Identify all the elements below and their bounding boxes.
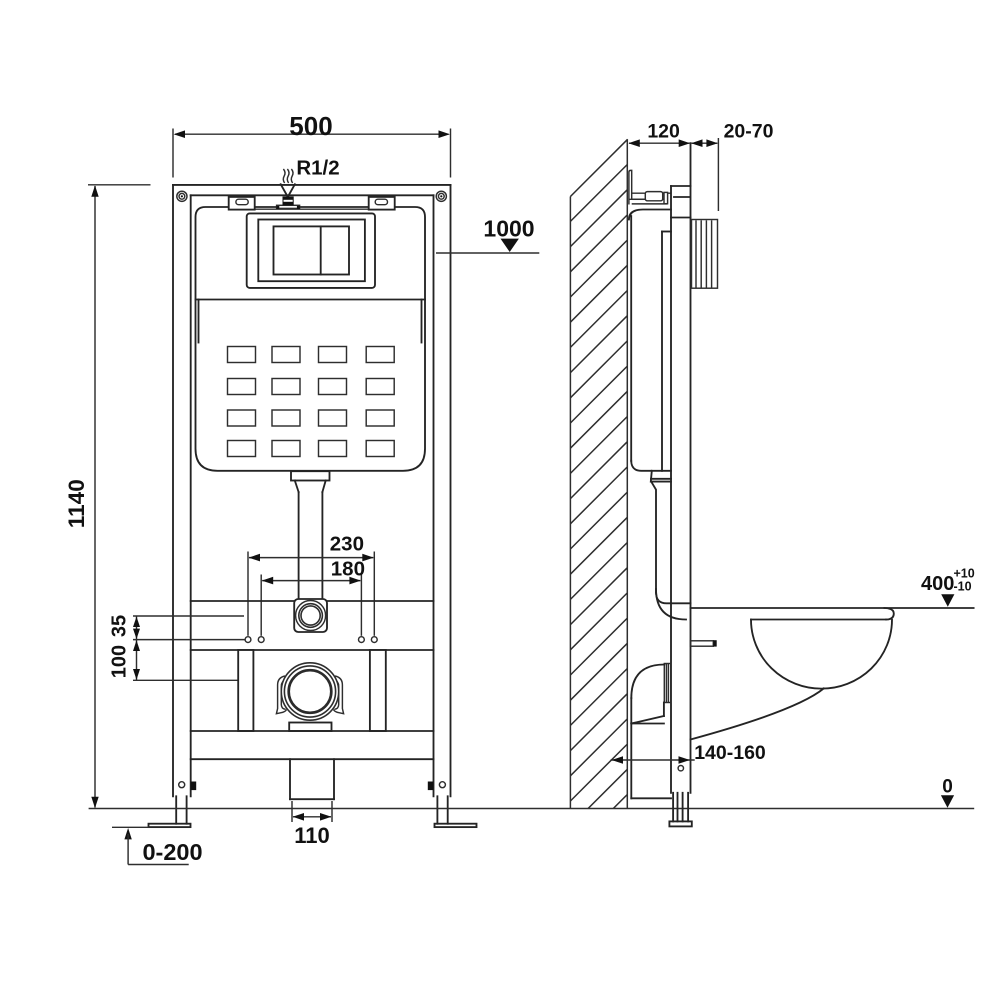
svg-text:120: 120	[647, 121, 680, 143]
svg-text:230: 230	[330, 533, 364, 556]
svg-text:180: 180	[331, 558, 365, 581]
svg-text:0-200: 0-200	[142, 839, 202, 865]
svg-text:+10: +10	[954, 567, 975, 581]
svg-text:500: 500	[289, 111, 332, 141]
svg-text:100: 100	[109, 645, 131, 678]
svg-text:-10: -10	[954, 580, 972, 594]
svg-text:0: 0	[942, 777, 953, 798]
svg-text:140-160: 140-160	[694, 742, 766, 764]
svg-text:1000: 1000	[483, 216, 534, 242]
svg-text:20-70: 20-70	[724, 121, 774, 143]
svg-text:1140: 1140	[64, 479, 89, 528]
svg-text:400: 400	[921, 573, 954, 595]
svg-text:110: 110	[294, 823, 330, 848]
svg-text:35: 35	[109, 615, 131, 637]
svg-text:R1/2: R1/2	[296, 157, 339, 180]
